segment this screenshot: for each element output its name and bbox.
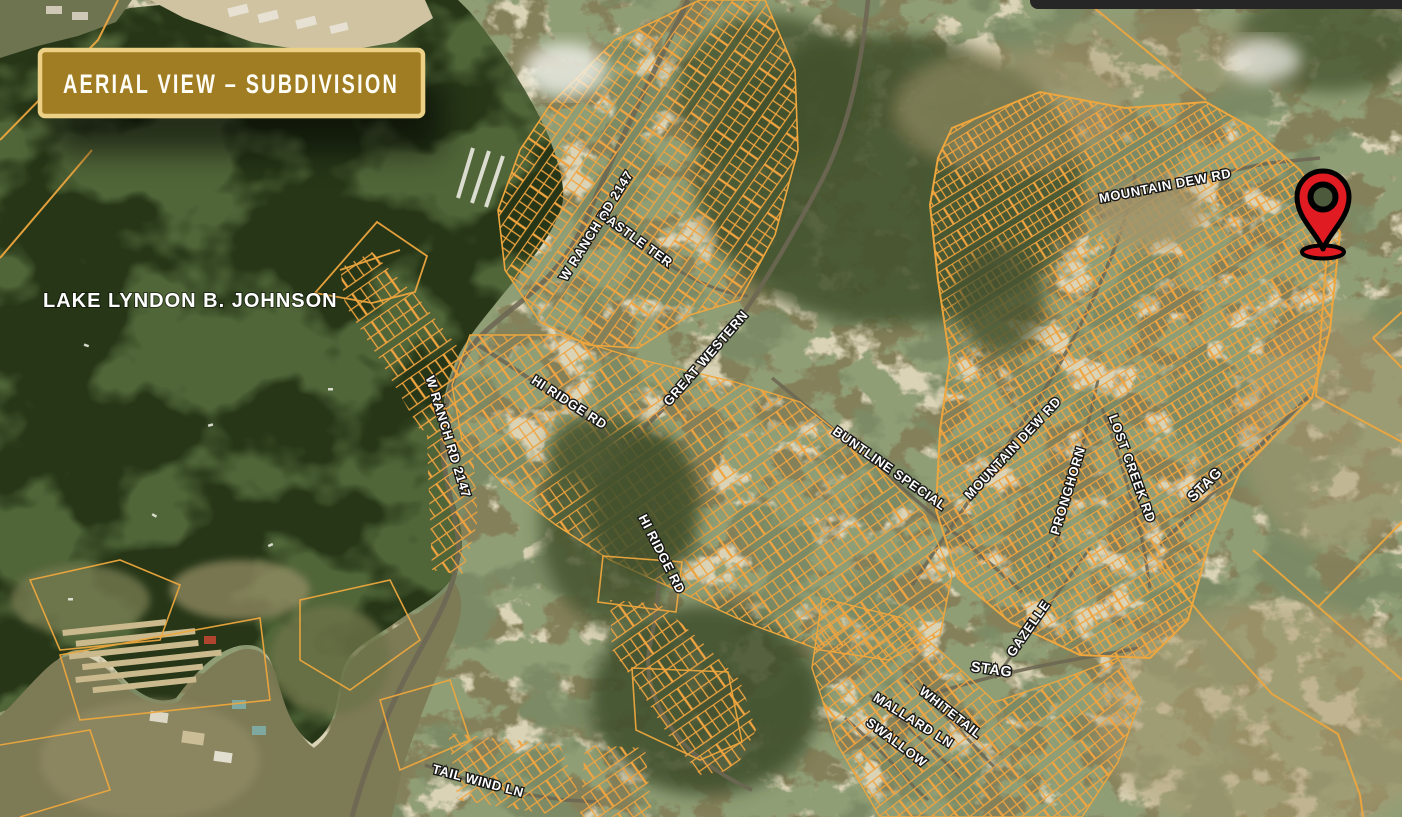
- title-banner-text: AERIAL VIEW – SUBDIVISION: [63, 69, 399, 99]
- title-banner: AERIAL VIEW – SUBDIVISION: [40, 50, 423, 116]
- top-dark-bar: [1030, 0, 1402, 9]
- aerial-view-image: W RANCH RD 2147 CASTLE TER GREAT WESTERN…: [0, 0, 1402, 817]
- aerial-map: W RANCH RD 2147 CASTLE TER GREAT WESTERN…: [0, 0, 1402, 817]
- lake-name-label: LAKE LYNDON B. JOHNSON: [43, 290, 338, 312]
